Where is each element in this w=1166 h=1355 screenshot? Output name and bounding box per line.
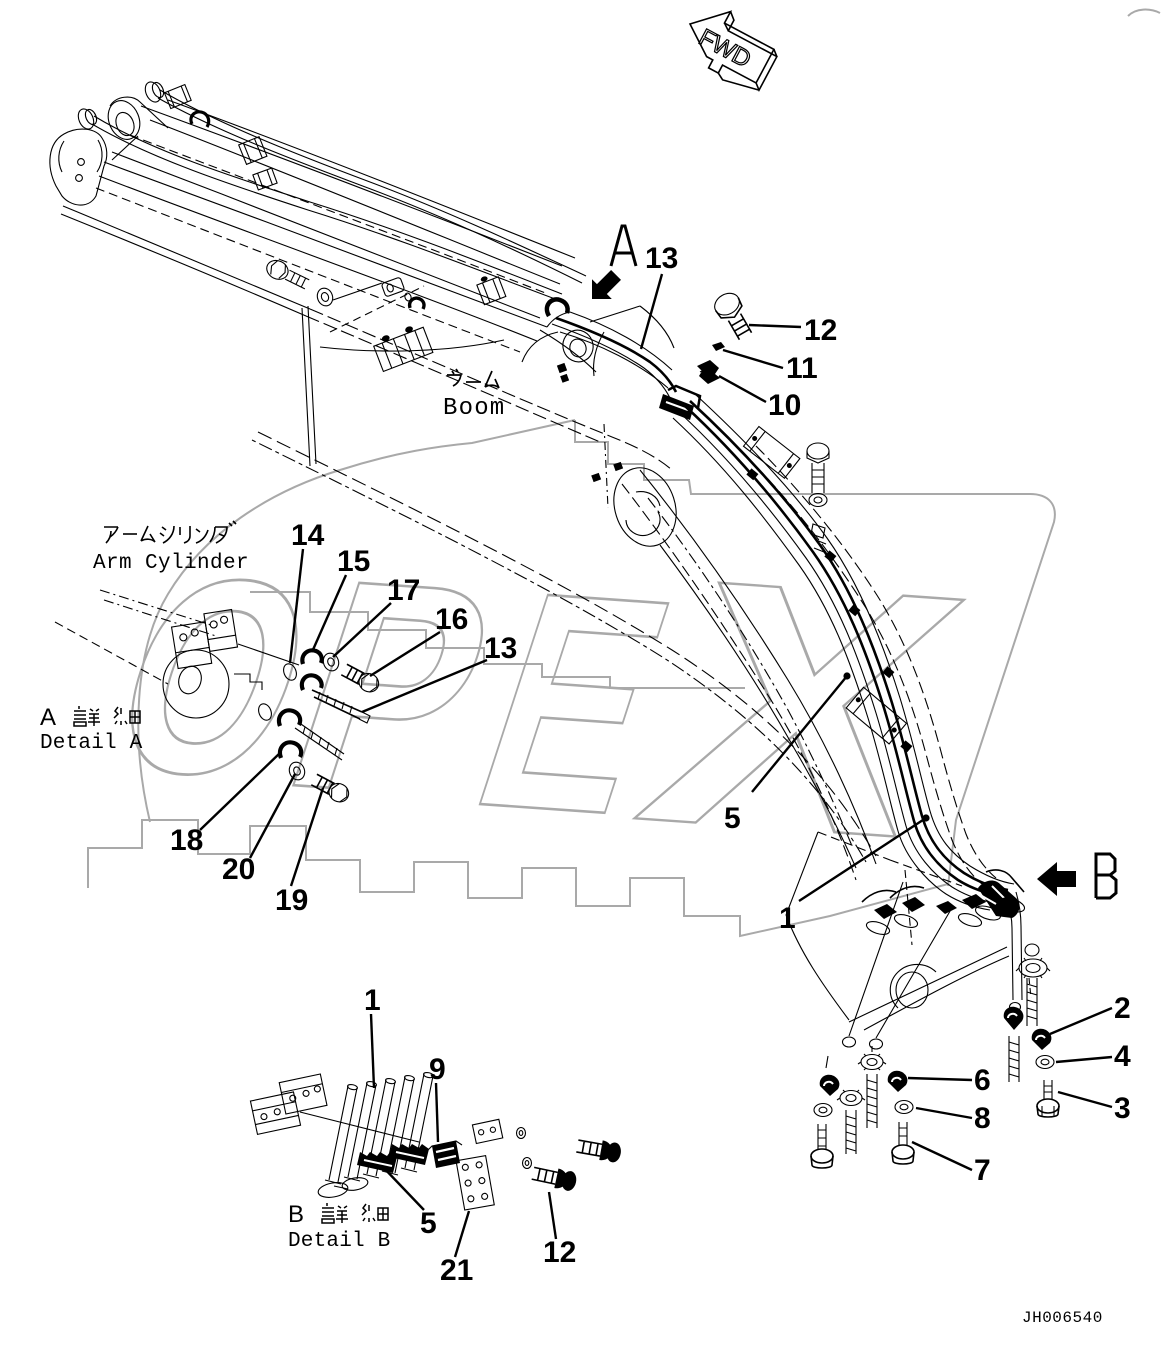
svg-text:10: 10 [768, 389, 801, 422]
svg-text:Boom: Boom [443, 395, 505, 422]
svg-text:16: 16 [435, 603, 468, 636]
svg-text:5: 5 [724, 802, 741, 835]
svg-text:1: 1 [779, 902, 796, 935]
svg-text:Detail B: Detail B [288, 1230, 390, 1253]
svg-text:9: 9 [429, 1053, 446, 1086]
svg-text:4: 4 [1114, 1040, 1131, 1073]
svg-text:3: 3 [1114, 1092, 1131, 1125]
svg-text:2: 2 [1114, 992, 1131, 1025]
svg-text:B: B [288, 1201, 304, 1228]
svg-text:14: 14 [291, 519, 325, 552]
svg-text:5: 5 [420, 1207, 437, 1240]
svg-text:7: 7 [974, 1154, 991, 1187]
svg-text:11: 11 [786, 352, 818, 385]
svg-text:JH006540: JH006540 [1022, 1309, 1103, 1327]
svg-text:21: 21 [440, 1254, 473, 1287]
svg-text:6: 6 [974, 1064, 991, 1097]
svg-text:18: 18 [170, 824, 203, 857]
svg-text:Detail A: Detail A [40, 732, 143, 755]
svg-text:13: 13 [484, 632, 517, 665]
svg-text:1: 1 [364, 984, 381, 1017]
svg-text:13: 13 [645, 242, 678, 275]
svg-text:19: 19 [275, 884, 308, 917]
svg-text:15: 15 [337, 545, 370, 578]
svg-text:12: 12 [804, 314, 837, 347]
svg-text:12: 12 [543, 1236, 576, 1269]
svg-text:17: 17 [387, 574, 420, 607]
svg-text:Arm Cylinder: Arm Cylinder [93, 552, 249, 575]
svg-text:A: A [40, 704, 56, 731]
svg-text:8: 8 [974, 1102, 991, 1135]
